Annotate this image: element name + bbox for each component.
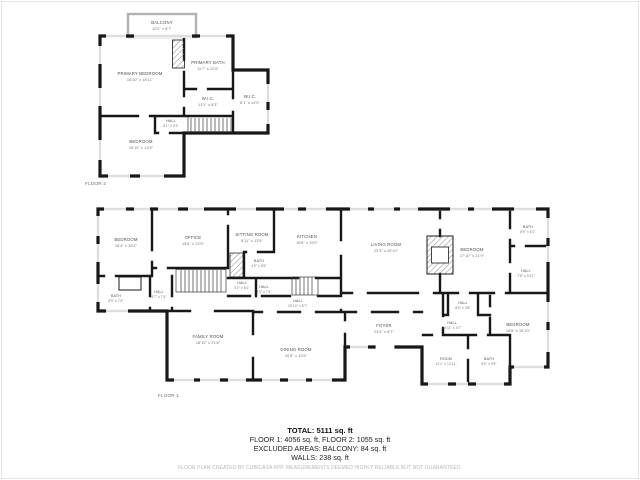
room-dims: 4'2" x 8'1" xyxy=(234,286,250,290)
room-label: BEDROOM 18'10" x 13'9" xyxy=(129,139,154,150)
stairs-floor2 xyxy=(188,117,231,133)
floor1-label: FLOOR 1 xyxy=(158,393,179,398)
floor2-plan: BALCONY 10'2" x 8'7" PRIMARY BEDROOM 18'… xyxy=(85,14,268,186)
stairs-floor1-main xyxy=(176,270,226,293)
room-name: BEDROOM xyxy=(506,322,530,327)
room-label: HALL 7'6" x 5'11" xyxy=(517,269,535,278)
room-dims: 10'2" x 8'7" xyxy=(152,27,172,31)
room-name: BATH xyxy=(111,294,121,298)
room-dims: 4'7" x 7'4" xyxy=(151,295,167,299)
room-name: BEDROOM xyxy=(129,139,153,144)
room-label: PRIMARY BEDROOM 18'10" x 18'11" xyxy=(117,71,162,82)
summary-total: TOTAL: 5111 sq. ft xyxy=(287,426,353,435)
disclaimer: FLOOR PLAN CREATED BY CUBICASA APP. MEAS… xyxy=(178,465,462,471)
room-label: HALL 8'5" x 3'8" xyxy=(455,301,471,310)
room-dims: 12'1" x 12'11" xyxy=(435,362,457,366)
room-name: SITTING ROOM xyxy=(235,232,269,237)
room-label: HALL 8'1" x 3'3" xyxy=(163,119,179,128)
room-name: OFFICE xyxy=(185,235,202,240)
fireplace xyxy=(427,236,453,274)
room-name: HALL xyxy=(521,269,531,273)
room-dims: 15'9" x 19'2" xyxy=(296,241,319,245)
room-label: BATH 4'9" x 5'5" xyxy=(251,259,267,268)
room-label: FAMILY ROOM 18'10" x 21'8" xyxy=(192,334,223,345)
room-dims: 13'1" x 8'3" xyxy=(198,103,218,107)
room-dims: 20'8" x 13'9" xyxy=(285,354,308,358)
room-label: W.I.C. 8'1" x 14'9" xyxy=(240,94,260,105)
room-label: BATH 8'9" x 7'4" xyxy=(108,294,124,303)
floor-plan-document: BALCONY 10'2" x 8'7" PRIMARY BEDROOM 18'… xyxy=(0,0,640,480)
room-name: HALL xyxy=(259,285,269,289)
room-label: FOYER 23'4" x 8'7" xyxy=(374,323,394,334)
closet-floor1 xyxy=(119,277,141,290)
room-name: DINING ROOM xyxy=(280,347,312,352)
room-dims: 8'5" x 3'8" xyxy=(455,306,471,310)
room-label: HALL 4'2" x 8'1" xyxy=(234,281,250,290)
balcony-railing xyxy=(128,14,196,37)
summary-block: TOTAL: 5111 sq. ft FLOOR 1: 4056 sq. ft,… xyxy=(178,426,462,471)
room-dims: 12'11" x 4'7" xyxy=(442,326,462,330)
room-name: BATH xyxy=(484,357,494,361)
room-label: BEDROOM 15'4" x 15'2" xyxy=(114,237,138,248)
room-label: HALL 3'3" x 7'4" xyxy=(256,285,272,294)
summary-excluded: EXCLUDED AREAS: BALCONY: 84 sq. ft xyxy=(254,444,387,453)
shower-floor2 xyxy=(173,40,185,68)
room-dims: 15'4" x 15'2" xyxy=(115,244,138,248)
room-label: BEDROOM 17'10" x 21'9" xyxy=(460,247,485,258)
room-dims: 18'10" x 13'9" xyxy=(129,146,154,150)
room-dims: 23'3" x 26'10" xyxy=(374,249,399,253)
room-dims: 18'8" x 15'10" xyxy=(506,329,531,333)
room-dims: 8'1" x 3'3" xyxy=(163,124,179,128)
room-dims: 8'11" x 13'9" xyxy=(241,239,263,243)
room-label: HALL 12'11" x 4'7" xyxy=(442,321,462,330)
room-name: HALL xyxy=(293,299,303,303)
room-name: ROOM xyxy=(440,357,452,361)
room-dims: 8'1" x 14'9" xyxy=(240,101,260,105)
room-dims: 17'10" x 21'9" xyxy=(460,254,485,258)
room-label: SITTING ROOM 8'11" x 13'9" xyxy=(235,232,269,243)
room-dims: 9'9" x 9'9" xyxy=(481,362,497,366)
summary-floors: FLOOR 1: 4056 sq. ft, FLOOR 2: 1055 sq. … xyxy=(250,435,391,444)
floor2-label: FLOOR 2 xyxy=(85,181,106,186)
room-name: W.I.C. xyxy=(244,94,257,99)
room-label: ROOM 12'1" x 12'11" xyxy=(435,357,457,366)
room-name: HALL xyxy=(166,119,176,123)
room-label: OFFICE 15'8" x 13'9" xyxy=(182,235,205,246)
room-label: HALL 4'7" x 7'4" xyxy=(151,290,167,299)
room-dims: 20'10" x 8'7" xyxy=(288,304,308,308)
room-label: BATH 9'9" x 9'9" xyxy=(481,357,497,366)
room-dims: 11'7" x 12'6" xyxy=(197,67,219,71)
room-dims: 8'9" x 6'1" xyxy=(520,230,536,234)
room-name: W.I.C. xyxy=(202,96,215,101)
room-name: HALL xyxy=(154,290,164,294)
floor-plan-svg: BALCONY 10'2" x 8'7" PRIMARY BEDROOM 18'… xyxy=(0,0,640,480)
room-dims: 4'9" x 5'5" xyxy=(251,264,267,268)
stairs-floor1-secondary xyxy=(292,277,318,295)
room-label: BEDROOM 18'8" x 15'10" xyxy=(506,322,531,333)
floor1-plan: BEDROOM 15'4" x 15'2" OFFICE 15'8" x 13'… xyxy=(98,209,548,398)
room-name: HALL xyxy=(237,281,247,285)
room-dims: 23'4" x 8'7" xyxy=(374,330,394,334)
room-label: W.I.C. 13'1" x 8'3" xyxy=(198,96,218,107)
room-name: KITCHEN xyxy=(297,234,317,239)
shower-floor1 xyxy=(230,253,243,277)
room-name: PRIMARY BEDROOM xyxy=(117,71,162,76)
room-name: HALL xyxy=(458,301,468,305)
room-name: BEDROOM xyxy=(114,237,138,242)
room-dims: 18'10" x 21'8" xyxy=(196,341,221,345)
room-label: BATH 8'9" x 6'1" xyxy=(520,225,536,234)
room-label: KITCHEN 15'9" x 19'2" xyxy=(296,234,319,245)
room-dims: 18'10" x 18'11" xyxy=(127,78,154,82)
room-name: PRIMARY BATH xyxy=(191,60,225,65)
room-dims: 15'8" x 13'9" xyxy=(182,242,205,246)
room-label: HALL 20'10" x 8'7" xyxy=(288,299,308,308)
room-dims: 8'9" x 7'4" xyxy=(108,299,124,303)
room-name: HALL xyxy=(447,321,457,325)
room-name: FOYER xyxy=(376,323,392,328)
room-label: DINING ROOM 20'8" x 13'9" xyxy=(280,347,312,358)
room-name: BEDROOM xyxy=(460,247,484,252)
room-name: FAMILY ROOM xyxy=(192,334,223,339)
room-name: BALCONY xyxy=(151,20,173,25)
room-name: BATH xyxy=(254,259,264,263)
room-label: LIVING ROOM 23'3" x 26'10" xyxy=(371,242,402,253)
room-dims: 7'6" x 5'11" xyxy=(517,274,535,278)
summary-walls: WALLS: 238 sq. ft xyxy=(291,453,349,462)
room-label: PRIMARY BATH 11'7" x 12'6" xyxy=(191,60,225,71)
room-name: LIVING ROOM xyxy=(371,242,402,247)
room-dims: 3'3" x 7'4" xyxy=(256,290,272,294)
room-name: BATH xyxy=(523,225,533,229)
